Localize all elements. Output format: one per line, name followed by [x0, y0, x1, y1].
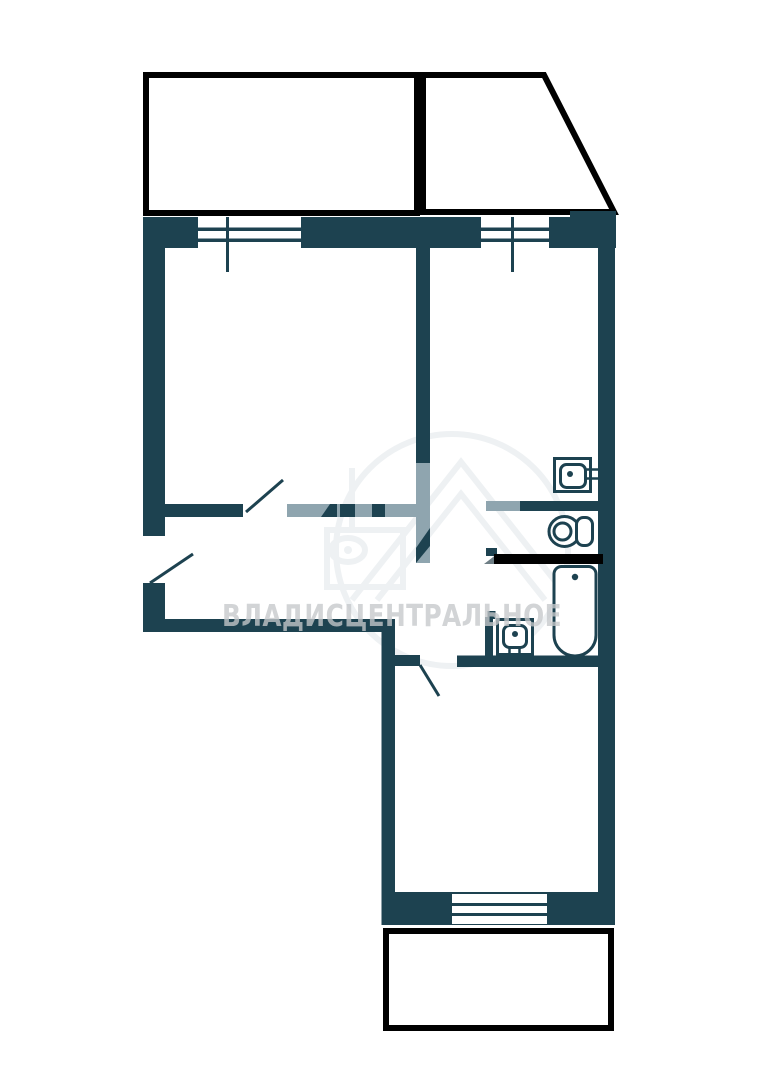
bottom-balcony: [386, 931, 611, 1028]
toilet-wall-light-section: [486, 501, 520, 511]
toilet-bowl-inner: [554, 523, 571, 540]
window-line: [452, 903, 547, 906]
toilet-icon: [549, 517, 593, 547]
toilet-tank: [577, 518, 593, 546]
kitchen-left-wall: [416, 217, 430, 463]
partition-dark-block-1: [340, 504, 355, 517]
watermark-text: ВЛАДИСЦЕНТРАЛЬНОЕ: [222, 599, 562, 634]
window-opening: [452, 894, 547, 924]
bedroom-door-swing: [420, 665, 439, 696]
left-wall-upper: [143, 217, 165, 536]
window-line: [198, 228, 301, 232]
window-tick: [511, 217, 514, 272]
floor-plan-page: ВЛАДИСЦЕНТРАЛЬНОЕ: [0, 0, 782, 1078]
bathtub-drain: [572, 574, 578, 580]
living-room-window: [198, 217, 301, 272]
kitchen-window: [481, 217, 549, 272]
window-line: [198, 239, 301, 243]
bathroom-bottom-wall: [457, 656, 615, 668]
toilet-top-wall: [520, 501, 598, 511]
black-wall: [494, 554, 603, 564]
sink-inner: [561, 465, 586, 488]
window-opening: [198, 217, 301, 248]
living-room-door-swing: [246, 480, 283, 512]
window-tick: [226, 217, 229, 272]
bedroom-door-stub: [394, 655, 420, 666]
right-wall: [598, 211, 615, 925]
window-line: [452, 913, 547, 916]
bedroom-window: [452, 894, 547, 924]
top-left-balcony: [146, 75, 417, 213]
partition-dark-block-2: [372, 504, 385, 517]
window-opening: [481, 217, 549, 248]
entry-door-swing: [150, 554, 193, 583]
logo-ring-dot: [344, 546, 352, 554]
top-right-balcony: [423, 75, 614, 212]
floor-plan-canvas: ВЛАДИСЦЕНТРАЛЬНОЕ: [0, 0, 782, 1078]
black-wall-segment: [484, 554, 603, 564]
kitchen-sink-icon: [555, 459, 599, 492]
window-line: [481, 239, 549, 243]
sink-dot: [567, 471, 573, 477]
window-line: [481, 228, 549, 232]
bedroom-left-wall: [382, 619, 396, 925]
living-room-wall-stub: [165, 504, 243, 517]
